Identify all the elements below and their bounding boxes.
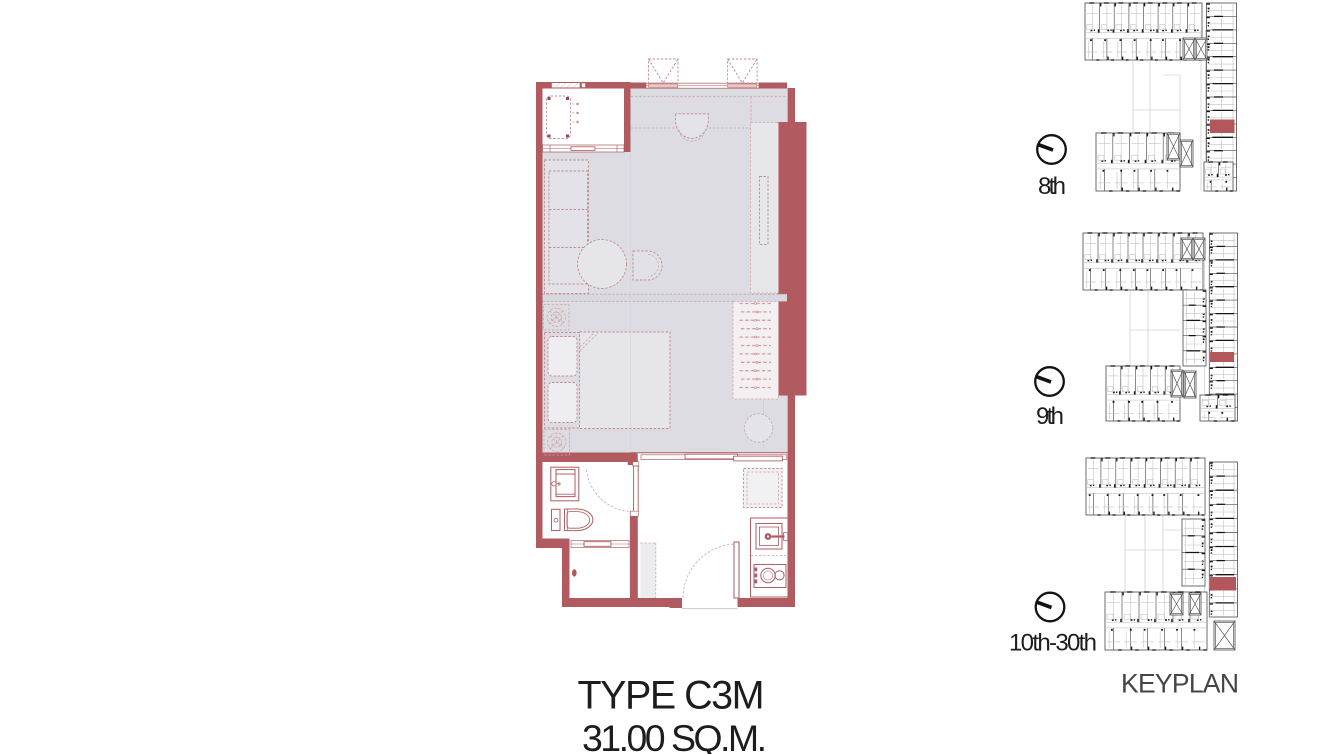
svg-text:TYPE C3M: TYPE C3M <box>578 674 765 718</box>
svg-text:9th: 9th <box>1036 403 1064 430</box>
svg-text:31.00 SQ.M.: 31.00 SQ.M. <box>582 717 767 754</box>
svg-text:KEYPLAN: KEYPLAN <box>1121 669 1239 699</box>
svg-text:10th-30th: 10th-30th <box>1009 630 1097 657</box>
svg-text:8th: 8th <box>1038 173 1066 200</box>
